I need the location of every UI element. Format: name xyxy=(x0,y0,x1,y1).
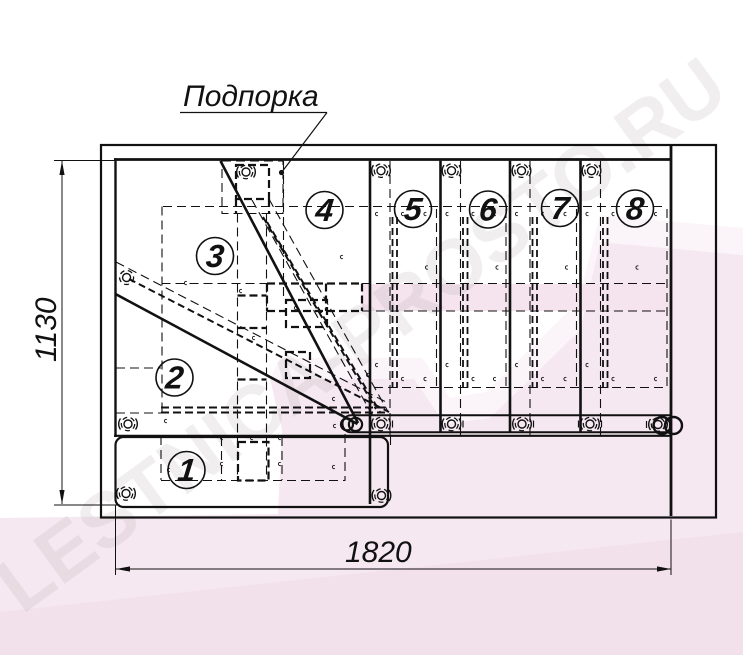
svg-text:1820: 1820 xyxy=(345,536,412,569)
svg-text:2: 2 xyxy=(163,360,186,396)
svg-text:1: 1 xyxy=(176,452,198,488)
svg-text:Подпорка: Подпорка xyxy=(183,80,319,113)
svg-text:4: 4 xyxy=(313,192,336,228)
svg-text:1130: 1130 xyxy=(30,297,63,362)
